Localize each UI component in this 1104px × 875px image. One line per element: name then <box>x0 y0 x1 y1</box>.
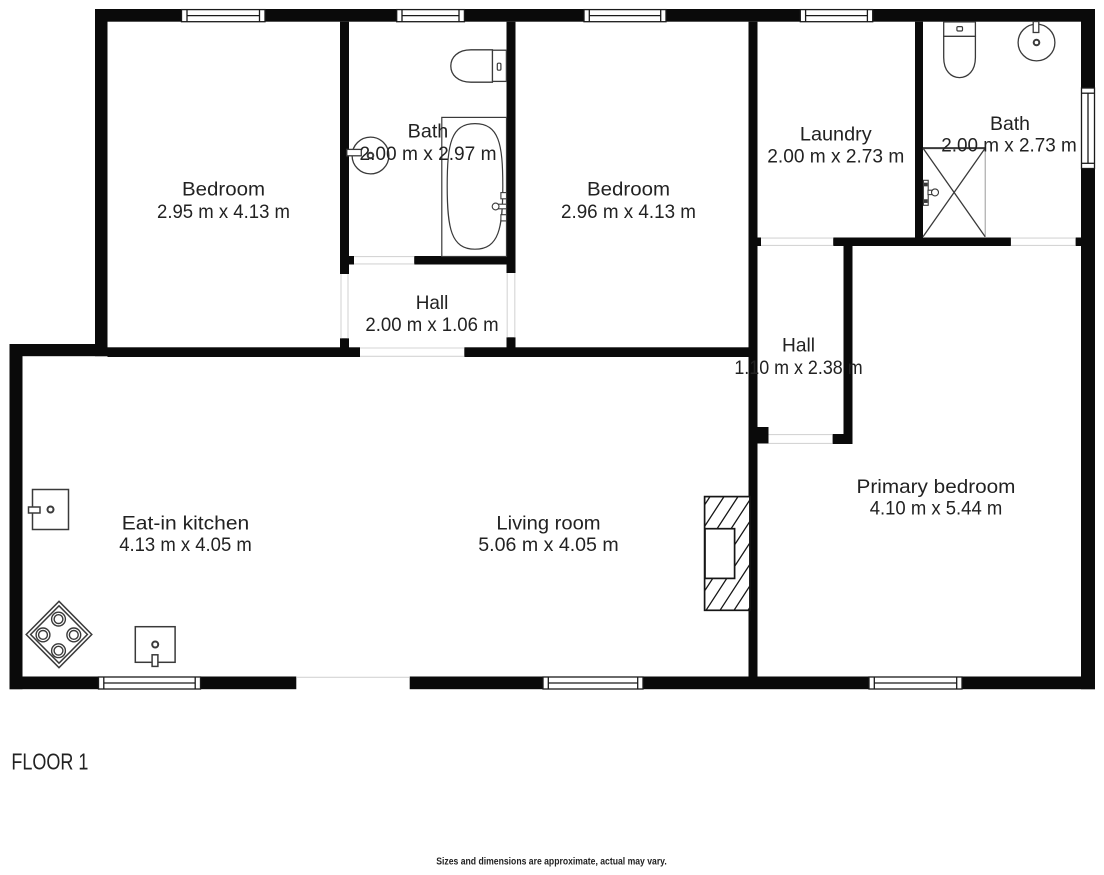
svg-text:2.00 m x 2.73 m: 2.00 m x 2.73 m <box>941 135 1077 157</box>
svg-text:4.13 m x 4.05 m: 4.13 m x 4.05 m <box>119 534 252 556</box>
svg-text:Bath: Bath <box>408 121 449 143</box>
svg-text:Sizes and dimensions are appro: Sizes and dimensions are approximate, ac… <box>436 856 667 868</box>
svg-text:Hall: Hall <box>782 335 815 357</box>
svg-text:Bedroom: Bedroom <box>587 179 670 201</box>
svg-text:Laundry: Laundry <box>800 123 872 145</box>
svg-text:4.10 m x 5.44 m: 4.10 m x 5.44 m <box>870 497 1003 519</box>
svg-text:1.10 m x 2.38 m: 1.10 m x 2.38 m <box>734 357 862 379</box>
svg-text:2.00 m x 2.73 m: 2.00 m x 2.73 m <box>767 146 904 168</box>
svg-text:2.00 m x 1.06 m: 2.00 m x 1.06 m <box>365 314 498 336</box>
svg-text:Living room: Living room <box>496 512 600 534</box>
svg-text:Bedroom: Bedroom <box>182 179 265 201</box>
svg-text:2.96 m x 4.13 m: 2.96 m x 4.13 m <box>561 201 696 223</box>
svg-text:2.00 m x 2.97 m: 2.00 m x 2.97 m <box>360 143 497 165</box>
svg-text:2.95 m x 4.13 m: 2.95 m x 4.13 m <box>157 201 290 223</box>
svg-text:Hall: Hall <box>416 292 449 314</box>
svg-text:Primary bedroom: Primary bedroom <box>857 476 1016 498</box>
svg-text:Eat-in kitchen: Eat-in kitchen <box>122 512 250 534</box>
svg-text:5.06 m x 4.05 m: 5.06 m x 4.05 m <box>478 534 618 556</box>
svg-text:Bath: Bath <box>990 113 1030 135</box>
svg-text:FLOOR 1: FLOOR 1 <box>11 749 88 775</box>
